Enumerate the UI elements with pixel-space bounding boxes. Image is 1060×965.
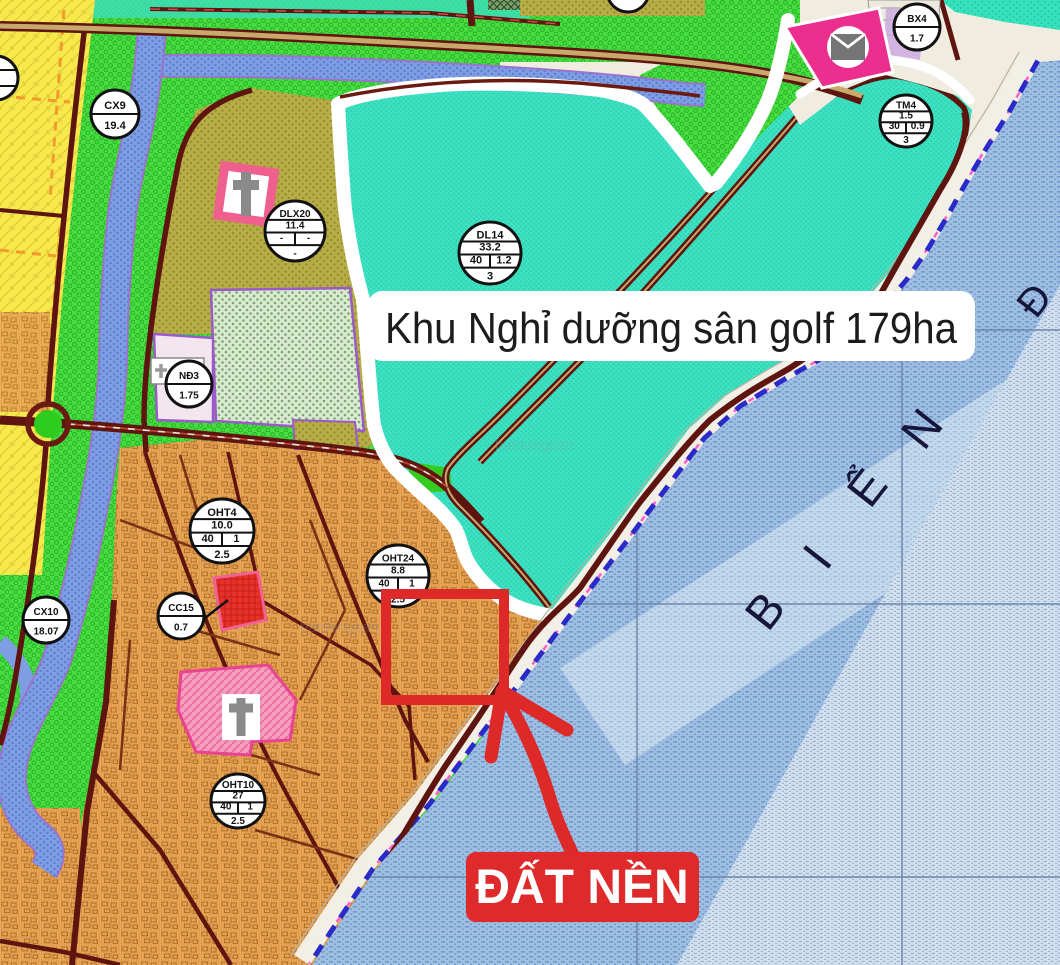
svg-text:1: 1 xyxy=(233,533,239,545)
svg-text:8.8: 8.8 xyxy=(391,566,405,577)
svg-text:ĐẤT NỀN: ĐẤT NỀN xyxy=(475,860,688,914)
svg-text:CX10: CX10 xyxy=(33,607,58,618)
svg-text:CX9: CX9 xyxy=(104,100,125,112)
svg-text:0.9: 0.9 xyxy=(911,121,925,132)
svg-text:DLX20: DLX20 xyxy=(279,209,311,220)
svg-text:40: 40 xyxy=(470,255,482,267)
svg-text:1.75: 1.75 xyxy=(179,390,199,401)
svg-text:19.4: 19.4 xyxy=(104,120,126,132)
svg-text:-: - xyxy=(280,233,283,244)
svg-text:OHT4: OHT4 xyxy=(207,507,237,519)
svg-text:40: 40 xyxy=(220,802,232,813)
svg-text:0.7: 0.7 xyxy=(174,622,188,633)
svg-text:1: 1 xyxy=(409,579,415,590)
svg-text:1.2: 1.2 xyxy=(496,255,511,267)
svg-text:BX4: BX4 xyxy=(907,14,927,25)
svg-text:1: 1 xyxy=(247,802,253,813)
svg-text:10.0: 10.0 xyxy=(211,520,232,532)
svg-text:30: 30 xyxy=(889,121,901,132)
svg-text:2.5: 2.5 xyxy=(214,549,229,561)
svg-text:2.5: 2.5 xyxy=(231,816,245,827)
svg-text:NĐ3: NĐ3 xyxy=(179,371,199,382)
svg-text:batdongsan: batdongsan xyxy=(495,437,573,454)
svg-text:1.7: 1.7 xyxy=(910,33,924,44)
svg-text:Khu Nghỉ dưỡng sân golf 179ha: Khu Nghỉ dưỡng sân golf 179ha xyxy=(385,304,957,353)
svg-text:33.2: 33.2 xyxy=(479,242,500,254)
svg-text:CC15: CC15 xyxy=(168,603,194,614)
svg-text:3: 3 xyxy=(903,135,909,146)
svg-text:3: 3 xyxy=(487,270,493,282)
svg-text:11.4: 11.4 xyxy=(286,221,305,232)
svg-text:40: 40 xyxy=(378,579,390,590)
svg-text:OHT24: OHT24 xyxy=(382,554,415,565)
svg-text:1.5: 1.5 xyxy=(899,110,913,121)
svg-text:-: - xyxy=(307,233,310,244)
svg-text:DL14: DL14 xyxy=(477,230,505,242)
svg-text:-: - xyxy=(293,249,296,260)
svg-text:40: 40 xyxy=(201,533,213,545)
svg-text:batdongsan: batdongsan xyxy=(300,619,378,636)
svg-text:18.07: 18.07 xyxy=(33,626,58,637)
svg-text:27: 27 xyxy=(232,790,244,801)
